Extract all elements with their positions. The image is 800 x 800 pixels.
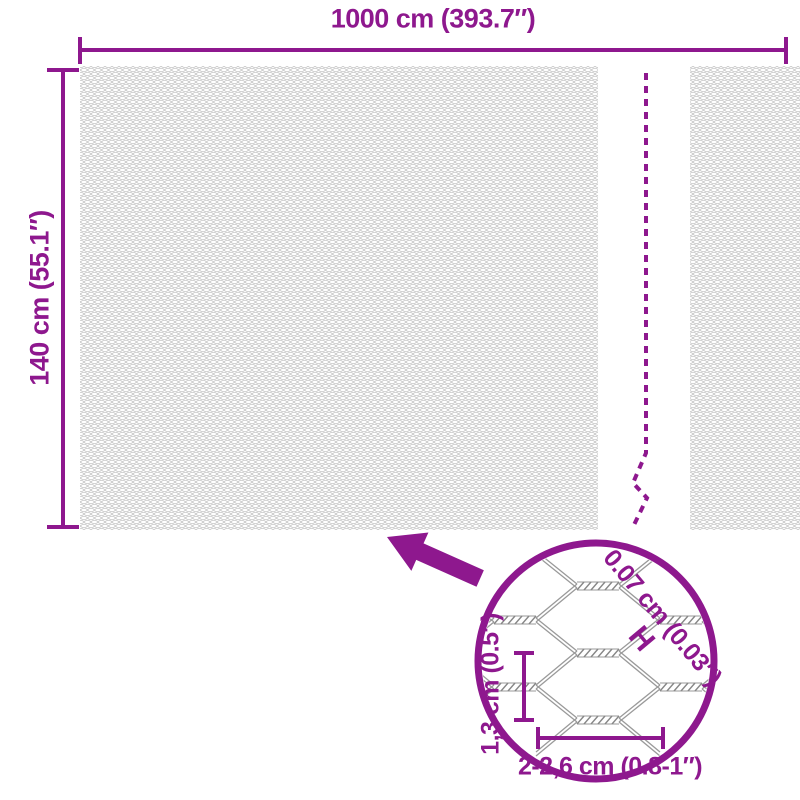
width-label: 1000 cm (393.7″) bbox=[331, 6, 536, 33]
fence-mesh-panel-main bbox=[80, 66, 598, 530]
width-dimension-line bbox=[80, 37, 786, 64]
product-dimension-diagram: 1000 cm (393.7″) 140 cm (55.1″) 0.07 cm … bbox=[0, 0, 800, 800]
cut-continuation-dashed-line bbox=[632, 73, 647, 529]
cell-width-label: 2-2,6 cm (0.8-1″) bbox=[518, 755, 702, 780]
detail-backdrop bbox=[482, 547, 710, 775]
fence-mesh-panel-right bbox=[690, 66, 800, 530]
cell-height-label: 1,3 cm (0.5″) bbox=[479, 613, 504, 755]
height-label: 140 cm (55.1″) bbox=[27, 210, 54, 386]
diagram-canvas bbox=[0, 0, 800, 800]
